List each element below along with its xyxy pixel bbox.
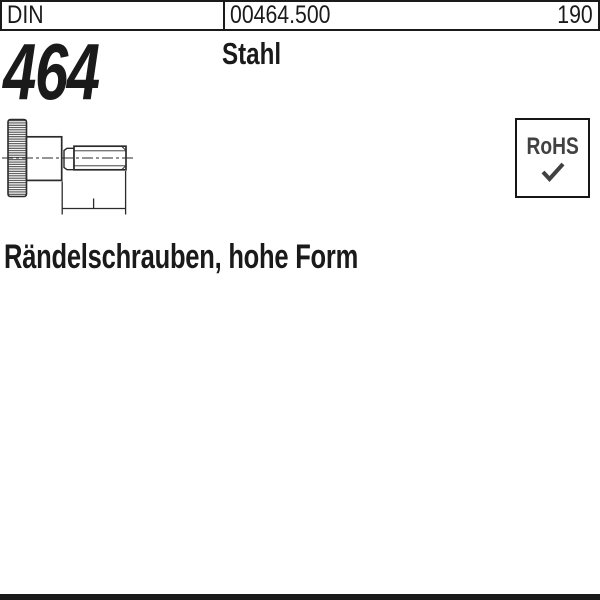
rohs-label: RoHS [526,135,578,159]
din-number: 464 [3,32,99,112]
header-cell-standard: DIN [2,2,225,29]
article-number: 00464.500 [230,3,330,28]
standard-label: DIN [7,3,44,28]
page-number: 190 [558,3,593,28]
bottom-bar [0,594,600,600]
technical-drawing-knurled-thumb-screw [0,105,140,220]
rohs-badge: RoHS [515,118,590,198]
material-label: Stahl [222,38,281,69]
neck [64,148,74,169]
head-body [27,137,62,181]
header-cell-article: 00464.500 190 [225,2,598,29]
check-icon [540,162,566,182]
product-title: Rändelschrauben, hohe Form [4,240,358,274]
